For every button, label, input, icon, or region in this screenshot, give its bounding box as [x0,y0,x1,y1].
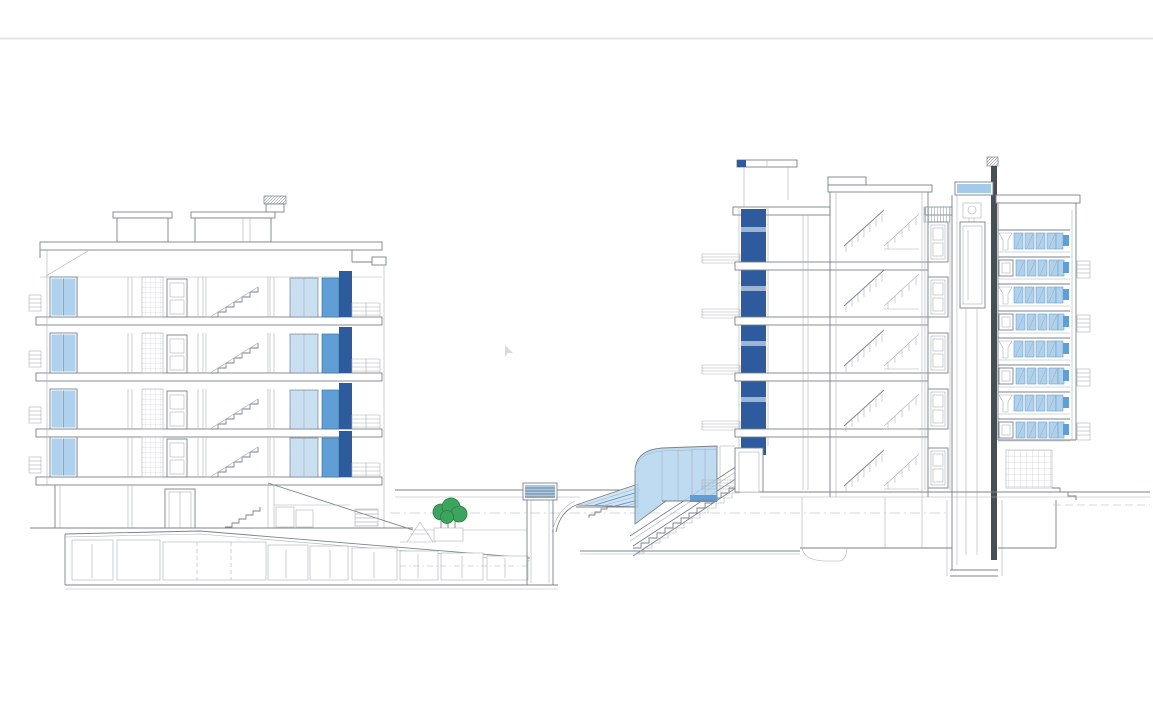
louver-tab [1077,315,1090,332]
ramp-end-marker [400,522,436,542]
balcony-rail [702,309,740,318]
left-glazing-strips [739,207,768,455]
window-row [998,311,1070,333]
roof-slab [40,242,382,250]
left-basement [65,531,558,589]
shaft-wall-cut [991,166,997,560]
glazing-strip [741,209,766,262]
chimney [266,204,284,212]
glazing-strip [741,270,766,317]
basement-room [352,548,397,580]
stair-flight [844,390,919,432]
balcony-rail [29,351,41,367]
stair-tower [828,177,932,497]
window-row [998,419,1070,441]
roof-mast [737,160,797,207]
glazing-strip [741,381,766,429]
terrace-steps [1052,488,1076,500]
louver-tab [1077,423,1090,440]
stair-steps [225,507,260,527]
left-floor-4 [50,271,380,317]
glass-canopy [635,446,717,524]
glazing-strip [741,325,766,373]
window-row [998,392,1070,414]
stair-flight [844,270,919,312]
stair-flight [844,450,919,492]
basement-room [117,540,160,580]
balcony-rail [702,365,740,374]
roof-grille [924,207,950,222]
corridor-door [928,222,948,262]
balcony-rail [29,457,41,473]
corridor-door [928,333,948,373]
cursor-artifact [505,345,513,357]
courtyard-trees [433,498,467,541]
balcony-rail [29,407,41,423]
basement-room [400,551,438,580]
corridor-door [928,448,948,488]
building-section-drawing [0,0,1153,720]
stair-flight [844,330,919,372]
attic-slope-line [46,251,88,276]
right-wing [996,195,1090,441]
tree [451,506,467,522]
left-floor-3 [50,327,380,373]
penthouse-left [117,218,168,242]
skylight-triangle [576,484,638,507]
basement-room [163,542,266,580]
left-roof-penthouses [40,196,386,277]
basement-room [268,545,308,580]
elevator-shaft [947,157,1002,576]
corridor-door [928,277,948,317]
curved-wall [556,505,576,532]
balcony-rail [29,295,41,311]
basement-room [72,540,113,580]
left-floor-2 [50,383,380,429]
basement-room [310,546,348,580]
louver-tab [1077,369,1090,386]
balcony-rail [702,254,740,263]
hoist-machine [963,203,981,218]
left-ground-floor [30,483,413,530]
chimney-cap [264,196,286,204]
window-row [998,230,1070,252]
louver-tab [1077,261,1090,278]
window-row [998,257,1070,279]
penthouse-right [195,218,271,242]
paved-terrace [1006,450,1052,488]
balcony-rail [702,421,740,430]
scanned-section-drawing-page [0,0,1153,720]
shaft-skylight [957,184,991,193]
stair-flight [844,210,919,252]
window-row [998,284,1070,306]
left-floor-1 [50,431,380,477]
corridor-door [928,389,948,429]
window-row [998,338,1070,360]
small-steps [589,506,613,518]
mast-tip [737,160,746,167]
basement-room [487,556,528,580]
window-row [998,365,1070,387]
right-basement [800,497,1150,561]
